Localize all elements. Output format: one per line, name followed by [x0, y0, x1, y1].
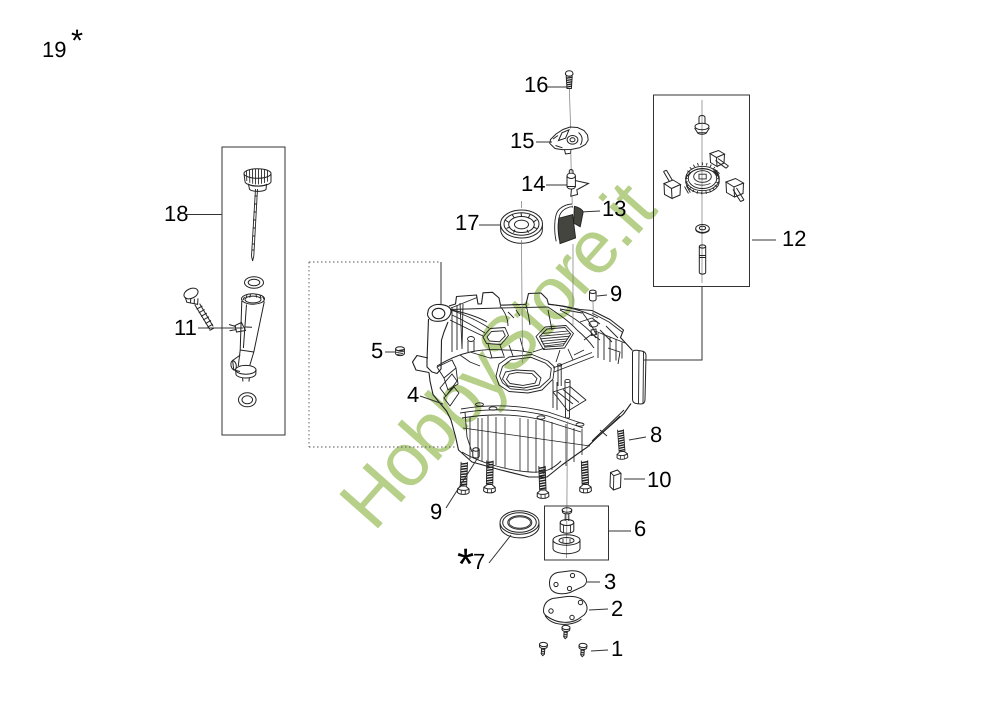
svg-text:16: 16 — [524, 72, 548, 97]
svg-text:17: 17 — [455, 210, 479, 235]
svg-text:7: 7 — [473, 549, 485, 574]
svg-text:2: 2 — [611, 596, 623, 621]
svg-text:*: * — [457, 540, 474, 589]
svg-text:12: 12 — [782, 226, 806, 251]
svg-text:5: 5 — [371, 338, 383, 363]
svg-text:*: * — [71, 23, 83, 58]
svg-text:6: 6 — [634, 516, 646, 541]
svg-text:14: 14 — [521, 171, 545, 196]
svg-text:18: 18 — [164, 201, 188, 226]
svg-text:19: 19 — [42, 37, 66, 62]
svg-text:10: 10 — [647, 467, 671, 492]
svg-text:3: 3 — [604, 569, 616, 594]
svg-text:11: 11 — [174, 315, 197, 340]
svg-text:8: 8 — [650, 422, 662, 447]
svg-text:9: 9 — [430, 499, 442, 524]
svg-text:13: 13 — [602, 196, 626, 221]
svg-text:4: 4 — [407, 382, 419, 407]
svg-text:15: 15 — [510, 128, 534, 153]
svg-text:9: 9 — [610, 281, 622, 306]
svg-text:1: 1 — [611, 636, 623, 661]
